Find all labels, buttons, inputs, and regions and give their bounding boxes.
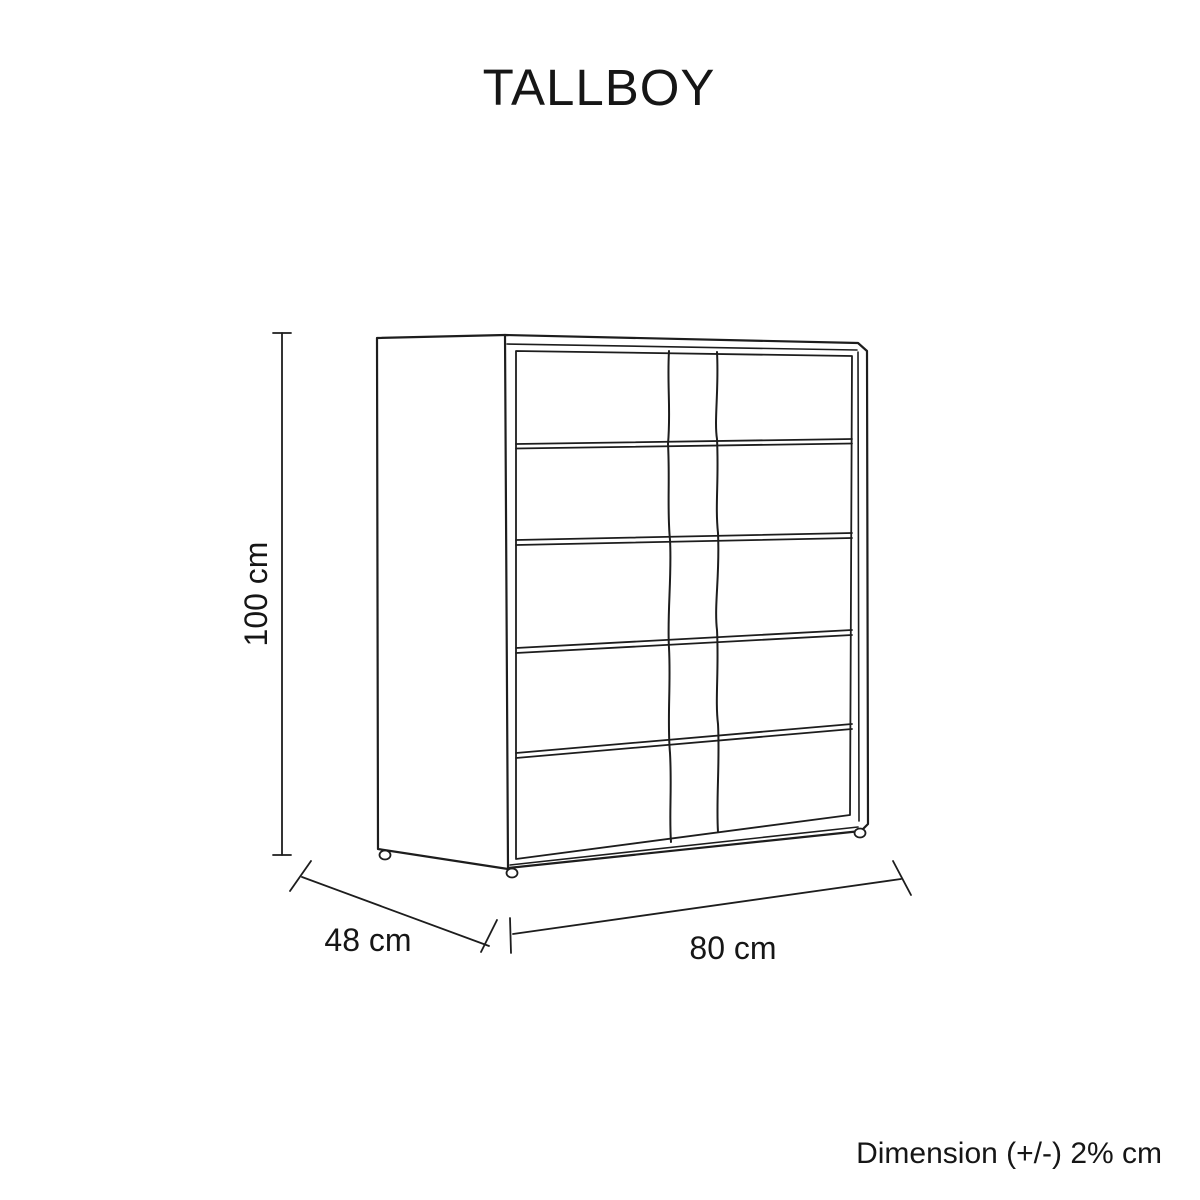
diagram-page: TALLBOY — [0, 0, 1200, 1200]
height-dimension-label: 100 cm — [238, 542, 274, 647]
width-dimension-label: 80 cm — [689, 930, 776, 966]
cabinet-foot-front-left — [507, 869, 518, 878]
width-dimension-tick-left — [510, 918, 511, 953]
tallboy-dimension-diagram: TALLBOY — [0, 0, 1200, 1200]
cabinet-foot-front-right — [855, 829, 866, 838]
cabinet-foot-back-left — [380, 851, 391, 860]
tolerance-note: Dimension (+/-) 2% cm — [856, 1137, 1162, 1170]
diagram-background — [0, 0, 1200, 1200]
depth-dimension-label: 48 cm — [324, 922, 411, 958]
cabinet-right-frame-line — [858, 352, 859, 821]
page-title: TALLBOY — [483, 59, 716, 116]
